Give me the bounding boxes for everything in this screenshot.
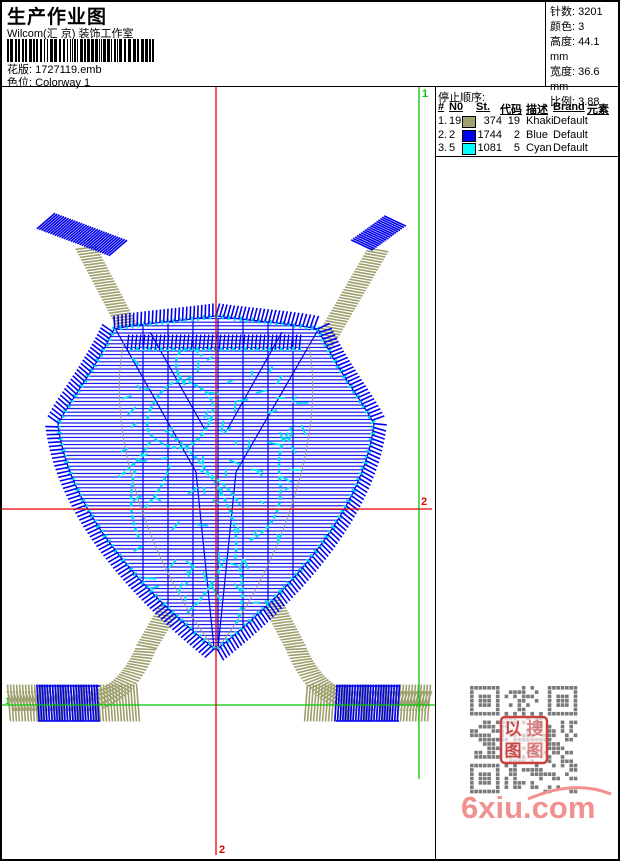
column-header: 元素	[587, 101, 609, 117]
row-code: 5	[502, 142, 520, 154]
watermark-text: 6xiu.com	[461, 790, 595, 825]
row-description: Blue	[526, 129, 548, 141]
row-index: 1.	[438, 115, 447, 127]
start-marker-label: 1	[422, 88, 428, 100]
row-brand: Default	[553, 129, 588, 141]
end-marker-label-right: 2	[421, 496, 427, 508]
column-header: Brand	[553, 101, 585, 113]
row-stitch-count: 1081	[476, 142, 502, 154]
svg-text:搜: 搜	[527, 719, 545, 739]
seal-stamp: 以图搜图	[501, 717, 547, 763]
row-brand: Default	[553, 115, 588, 127]
svg-text:图: 图	[505, 742, 522, 761]
right-column-divider	[435, 87, 436, 859]
row-index: 3.	[438, 142, 447, 154]
table-bottom-border	[435, 156, 618, 157]
svg-text:图: 图	[527, 742, 544, 761]
column-header: N0	[449, 101, 463, 113]
row-code: 2	[502, 129, 520, 141]
start-point-mini-label: 1	[5, 696, 10, 706]
thread-color-swatch	[462, 130, 476, 142]
production-sheet: 1 1 2 2 以图搜图 6xiu.com 生产作业图 Wilcom(汇 京) …	[0, 0, 620, 861]
svg-text:以: 以	[505, 720, 522, 739]
end-marker-label-bottom: 2	[219, 844, 225, 856]
thread-color-swatch	[462, 143, 476, 155]
column-header: St.	[476, 101, 490, 113]
stop-sequence-table: 停止顺序: #N0St.代码描述Brand元素1.1937419KhakiDef…	[436, 88, 618, 156]
thread-color-swatch	[462, 116, 476, 128]
row-description: Khaki	[526, 115, 554, 127]
column-header: #	[438, 101, 444, 113]
row-needle: 5	[449, 142, 455, 154]
watermark: 6xiu.com	[461, 788, 611, 825]
row-needle: 19	[449, 115, 461, 127]
row-needle: 2	[449, 129, 455, 141]
row-stitch-count: 374	[476, 115, 502, 127]
row-description: Cyan	[526, 142, 552, 154]
header-divider	[2, 86, 618, 87]
row-stitch-count: 1744	[476, 129, 502, 141]
row-brand: Default	[553, 142, 588, 154]
row-index: 2.	[438, 129, 447, 141]
row-code: 19	[502, 115, 520, 127]
